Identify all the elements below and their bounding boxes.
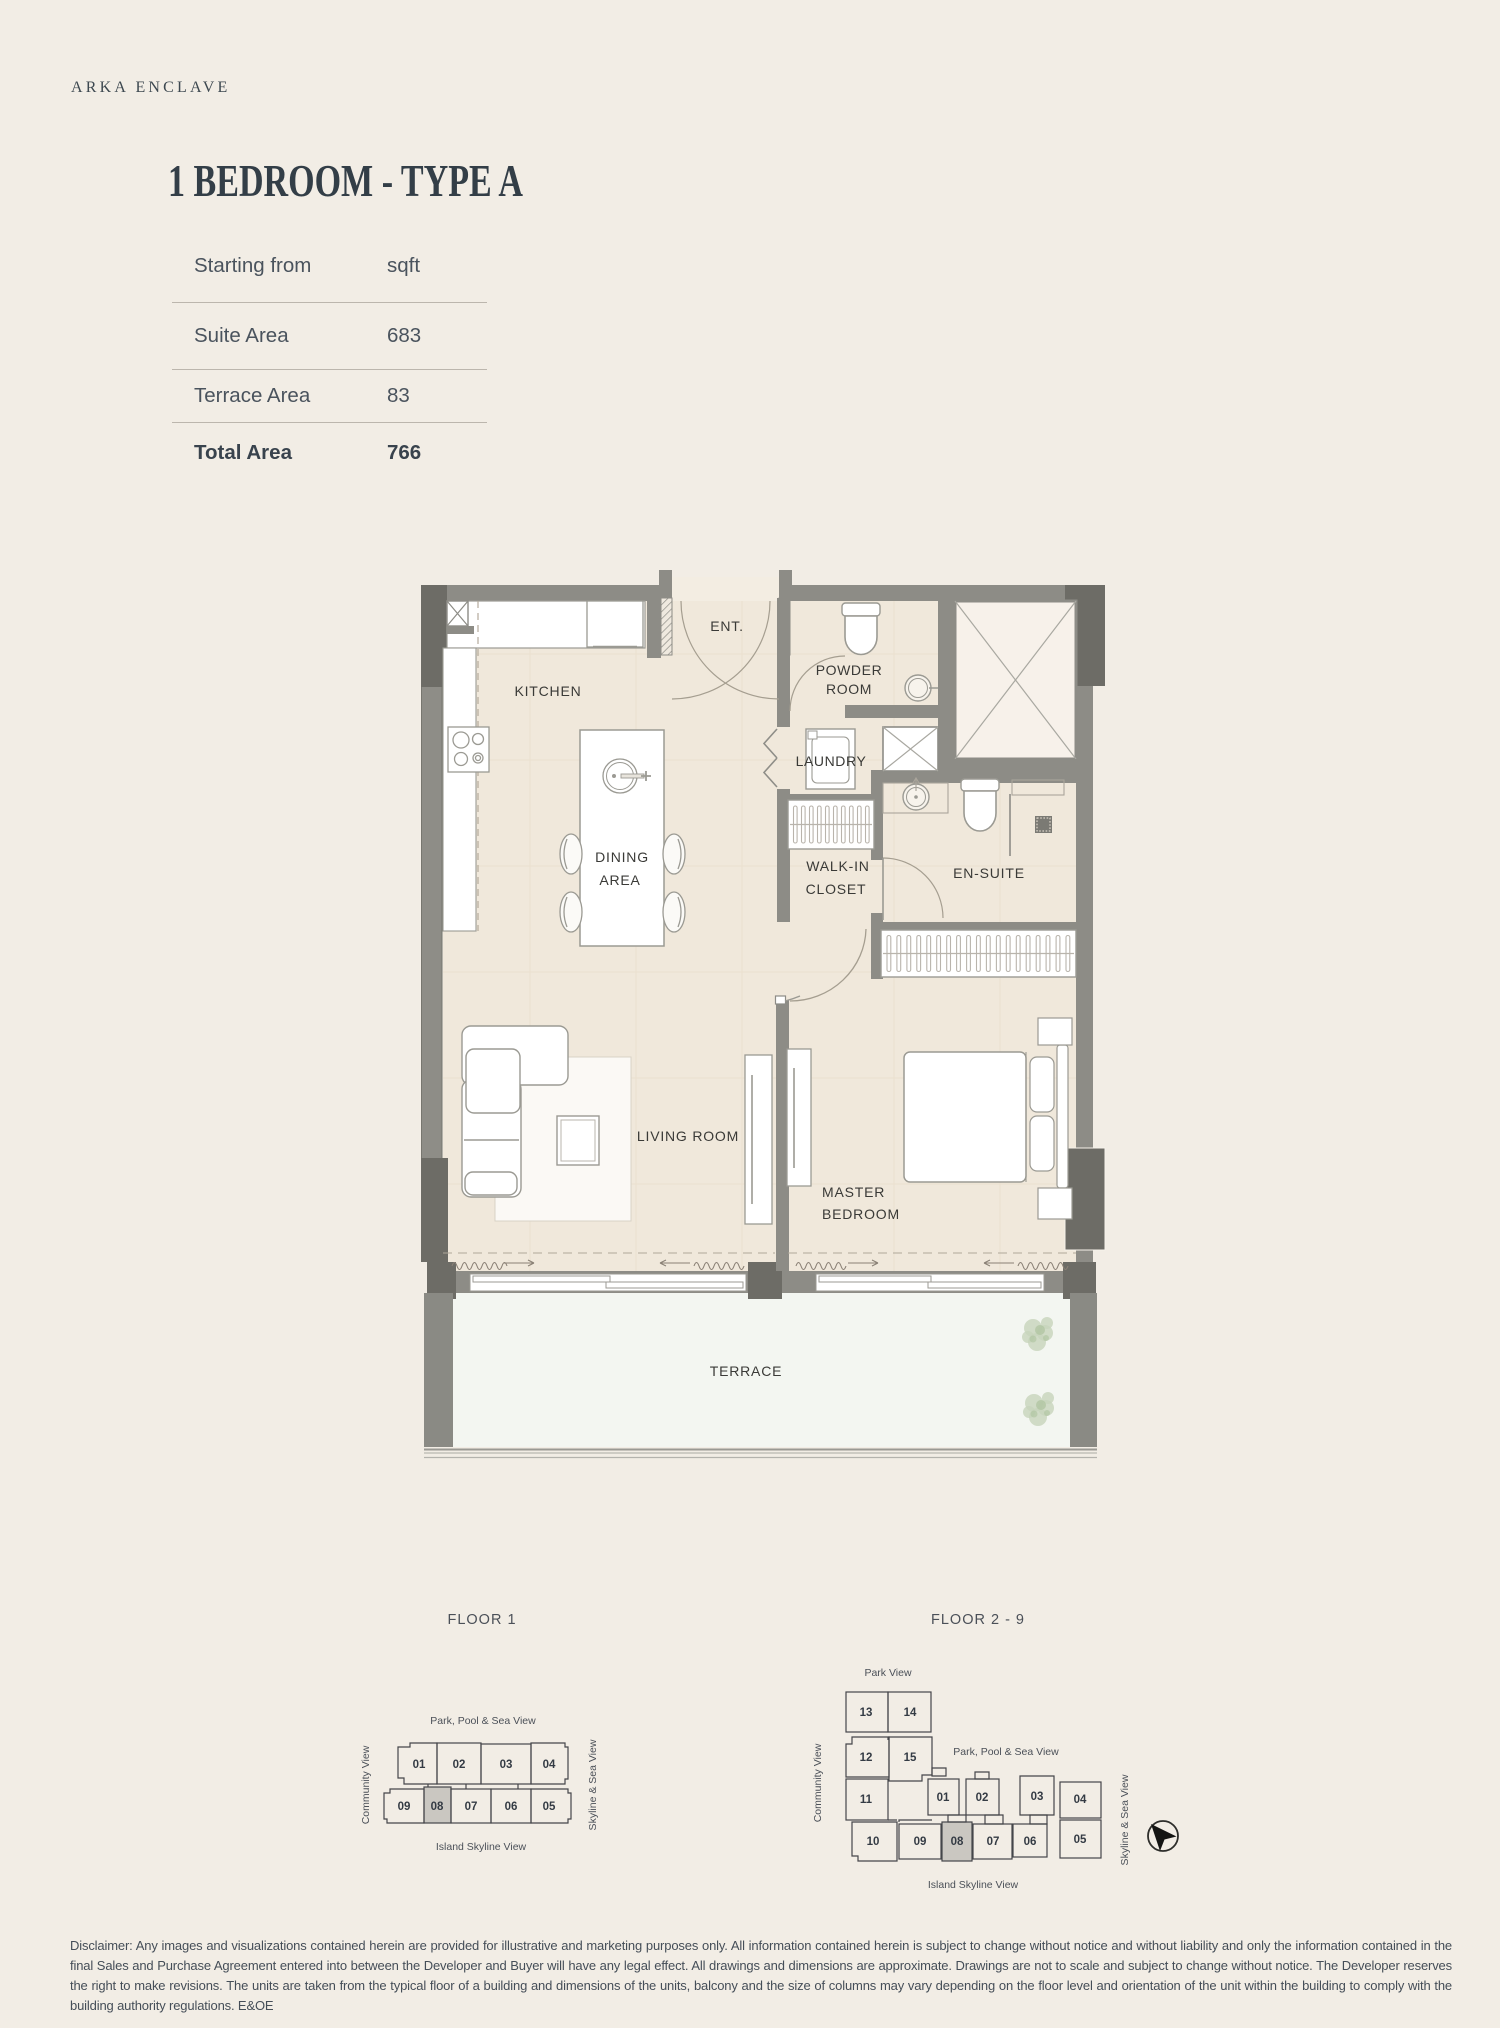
svg-text:01: 01 [413,1759,426,1771]
svg-text:FLOOR 2 - 9: FLOOR 2 - 9 [931,1612,1025,1628]
svg-text:Park View: Park View [864,1667,911,1679]
svg-text:AREA: AREA [599,872,640,888]
svg-text:11: 11 [860,1794,873,1806]
svg-text:Skyline & Sea View: Skyline & Sea View [587,1739,599,1830]
svg-text:14: 14 [904,1707,917,1719]
svg-text:TERRACE: TERRACE [710,1363,783,1379]
svg-text:04: 04 [1074,1794,1087,1806]
svg-text:LAUNDRY: LAUNDRY [796,753,867,769]
svg-text:Community View: Community View [360,1745,372,1824]
svg-text:ROOM: ROOM [826,681,872,697]
svg-text:13: 13 [860,1707,873,1719]
svg-text:05: 05 [543,1801,556,1813]
svg-text:02: 02 [453,1759,466,1771]
svg-text:EN-SUITE: EN-SUITE [953,865,1025,881]
svg-text:04: 04 [543,1759,556,1771]
svg-text:BEDROOM: BEDROOM [822,1206,900,1222]
svg-text:Island Skyline View: Island Skyline View [436,1841,527,1853]
svg-text:KITCHEN: KITCHEN [514,683,581,699]
svg-text:09: 09 [914,1836,927,1848]
svg-text:07: 07 [465,1801,478,1813]
svg-text:12: 12 [860,1752,873,1764]
svg-text:ENT.: ENT. [710,618,744,634]
svg-text:05: 05 [1074,1834,1087,1846]
svg-text:Community View: Community View [812,1743,824,1822]
svg-text:03: 03 [500,1759,513,1771]
svg-text:08: 08 [431,1801,444,1813]
svg-text:06: 06 [1024,1836,1037,1848]
svg-text:15: 15 [904,1752,917,1764]
svg-text:CLOSET: CLOSET [806,881,867,897]
svg-text:Skyline & Sea View: Skyline & Sea View [1119,1774,1131,1865]
svg-text:DINING: DINING [595,849,649,865]
svg-text:Park, Pool & Sea View: Park, Pool & Sea View [430,1715,536,1727]
svg-text:06: 06 [505,1801,518,1813]
svg-text:09: 09 [398,1801,411,1813]
svg-text:01: 01 [937,1792,950,1804]
svg-text:POWDER: POWDER [816,662,883,678]
svg-text:08: 08 [951,1836,964,1848]
svg-text:Park, Pool & Sea View: Park, Pool & Sea View [953,1746,1059,1758]
svg-text:FLOOR 1: FLOOR 1 [447,1612,516,1628]
svg-text:WALK-IN: WALK-IN [806,858,869,874]
svg-text:02: 02 [976,1792,989,1804]
svg-text:10: 10 [867,1836,880,1848]
svg-text:07: 07 [987,1836,1000,1848]
svg-text:Island Skyline View: Island Skyline View [928,1879,1019,1891]
svg-text:MASTER: MASTER [822,1184,885,1200]
svg-text:LIVING ROOM: LIVING ROOM [637,1128,739,1144]
svg-text:03: 03 [1031,1791,1044,1803]
